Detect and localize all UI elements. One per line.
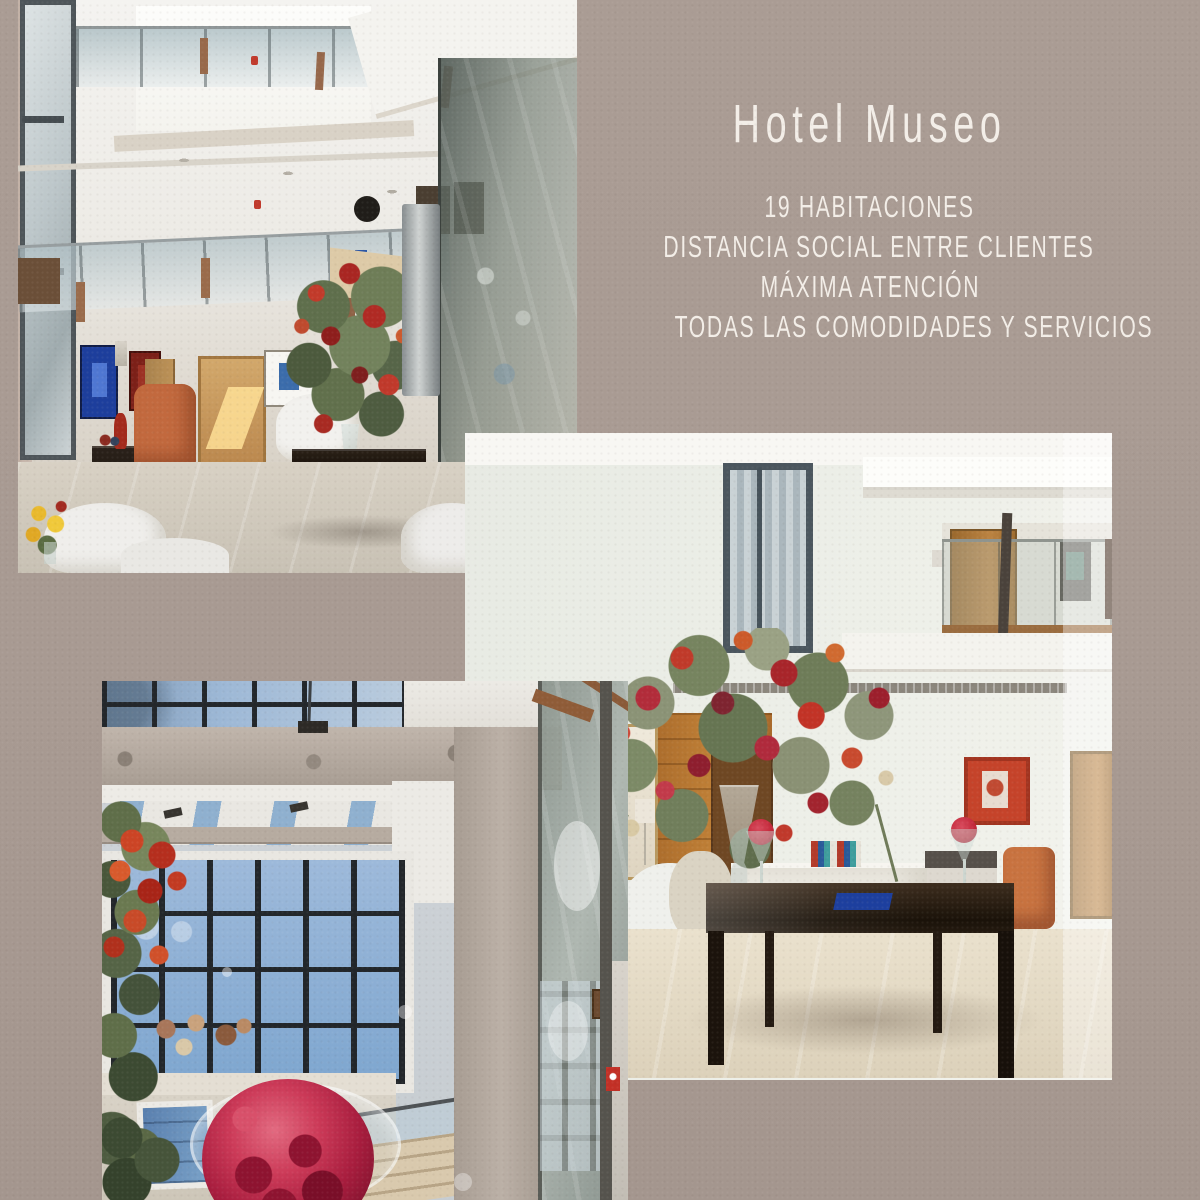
partition-reflections <box>448 150 573 430</box>
yellow-flowers <box>22 496 78 566</box>
blue-glass-decor <box>833 893 893 910</box>
fire-sign <box>606 1067 620 1091</box>
caption-block: Hotel Museo 19 HABITACIONES DISTANCIA SO… <box>562 0 1178 347</box>
slate-window <box>723 463 813 653</box>
feature-line-rooms: 19 HABITACIONES <box>562 187 1178 227</box>
bright-wall-column <box>1063 433 1112 1078</box>
elevator-doors <box>402 204 440 396</box>
fire-sign <box>254 200 261 209</box>
tall-window <box>20 0 76 460</box>
fire-sign <box>251 56 258 65</box>
lily-blooms <box>102 811 252 1011</box>
glass-shine <box>548 1001 588 1061</box>
small-glass-vase <box>44 542 56 564</box>
red-painting <box>964 757 1030 825</box>
ceiling-downlights <box>158 150 418 202</box>
lens-flare <box>454 1173 472 1191</box>
round-wall-art <box>354 196 380 222</box>
beam-bracket <box>298 721 328 733</box>
blue-painting <box>80 345 118 419</box>
table-leg <box>933 931 942 1033</box>
table-leg <box>708 931 724 1065</box>
corridor-dark <box>18 258 60 304</box>
oak-door <box>198 356 266 477</box>
wood-post <box>76 282 85 322</box>
window-bar <box>22 116 64 123</box>
table-leg <box>998 931 1014 1078</box>
glass-railing-upper <box>76 26 381 87</box>
door-stile <box>600 681 612 1200</box>
flyer-canvas: Hotel Museo 19 HABITACIONES DISTANCIA SO… <box>0 0 1200 1200</box>
wood-post <box>201 258 210 298</box>
small-bottles <box>98 428 122 450</box>
dried-leaves <box>142 1011 262 1071</box>
red-painting-inner <box>982 771 1008 808</box>
orange-armchair <box>134 384 196 468</box>
hotel-title-text: Hotel Museo <box>733 97 1007 151</box>
bottom-left-leaves <box>102 1111 202 1200</box>
taupe-column <box>454 727 540 1200</box>
hotel-title: Hotel Museo <box>562 97 1178 151</box>
feature-line-services: TODAS LAS COMODIDADES Y SERVICIOS <box>562 307 1178 347</box>
photo-skylight <box>102 681 628 1200</box>
white-armchair <box>121 538 229 573</box>
lens-flare <box>222 967 232 977</box>
glass-shine <box>554 821 600 911</box>
lens-flare <box>398 1005 412 1019</box>
table-leg <box>765 931 774 1027</box>
wall-sconce <box>115 341 127 366</box>
wood-post <box>200 38 208 74</box>
sunlight-patch <box>206 387 265 449</box>
blue-painting-inner <box>92 363 107 397</box>
feature-line-attention: MÁXIMA ATENCIÓN <box>562 267 1178 307</box>
window-mullion <box>757 467 762 635</box>
feature-line-distance: DISTANCIA SOCIAL ENTRE CLIENTES <box>562 227 1178 267</box>
table-floor-shadow <box>685 985 1045 1055</box>
